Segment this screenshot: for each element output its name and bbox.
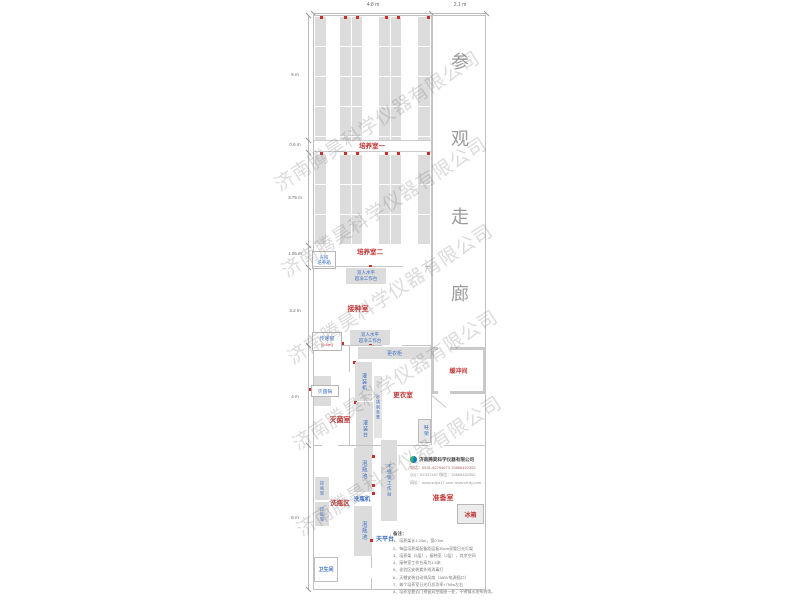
rack-seam (351, 17, 352, 140)
soak-pool-2: 泡瓶池 (354, 506, 372, 556)
outlet-dot (385, 16, 388, 19)
company-web: 网址：www.sdpd17.com www.crhkj.com (410, 480, 490, 486)
soak-pool-1-label: 泡瓶池 (360, 460, 366, 480)
bottle-rack-2-label: 控瓶架 (320, 507, 324, 522)
outlet-dot (397, 16, 400, 19)
wall-middle-south (313, 445, 322, 446)
wall-toilet-stub (371, 556, 372, 568)
toilet-room: 卫生间 (314, 557, 338, 582)
pass-window-area: (0.6㎡) (321, 342, 333, 348)
light-incubator-label: 光照 培养箱 (317, 255, 331, 266)
filling-machine-label: 灌装机 (361, 373, 366, 391)
outlet-dot (356, 16, 359, 19)
note-item: 4、接种室工作台高为1.5米 (393, 560, 485, 566)
steel-bench: 不锈钢条凳 (374, 376, 382, 438)
outlet-dot (372, 455, 375, 458)
wardrobe: 更衣柜 (358, 347, 431, 359)
buffer-door-gap (438, 390, 450, 395)
outlet-dot (372, 484, 375, 487)
filling-table-label: 灌装台 (362, 420, 367, 438)
note-item: 2、每层培养架配备距层板30cm双管日光灯架 (393, 546, 485, 552)
room-label-toilet: 卫生间 (318, 566, 333, 573)
note-item: 6、天棚安装自动排风扇（380V电源插口） (393, 575, 485, 581)
autoclave-tag: 灭菌锅 (311, 385, 339, 397)
soak-pool-2-label: 泡瓶池 (360, 521, 366, 541)
dim-left-1: 5 m (284, 72, 306, 77)
outlet-dot (372, 492, 375, 495)
buffer-door-gap (438, 346, 450, 351)
rack-seam (390, 155, 391, 245)
dim-left-6: 4 m (284, 394, 306, 399)
wardrobe-label: 更衣柜 (387, 350, 402, 357)
steel-worktable: 不锈钢工作台 (381, 440, 397, 521)
corridor-char: 走 (451, 203, 469, 229)
fridge-label: 冰箱 (464, 510, 476, 519)
corridor-char: 参 (451, 48, 469, 74)
autoclave-label: 灭菌锅 (318, 388, 332, 395)
shoe-rack-label: 鞋架 (422, 425, 427, 437)
bottle-rack-1-label: 控瓶架 (320, 481, 324, 496)
culture-rack (315, 155, 326, 245)
steel-bench-label: 不锈钢条凳 (376, 395, 380, 420)
wall-middle-south (444, 445, 486, 446)
filling-machine: 灌装机 (355, 362, 372, 401)
shoe-rack: 鞋架 (418, 419, 431, 443)
company-phone: 电话：0531-82794673 15866452352 (410, 465, 490, 471)
wall-culture2-inoculation (425, 266, 431, 267)
dim-left-3: 3.75 m (284, 195, 306, 200)
pass-window-label: 传递窗 (319, 335, 334, 342)
room-label-culture2: 培养室二 (338, 249, 402, 256)
company-block: 济南腾昊科学仪器有限公司 电话：0531-82794673 1586645235… (410, 456, 490, 486)
clean-bench-1-label: 双人水平 超净工作台 (355, 270, 378, 281)
outlet-dot (427, 16, 430, 19)
dim-left-4: 1.05 m (284, 251, 306, 256)
note-item: 1、培养架长1.25m，宽0.5m (393, 538, 485, 544)
room-label-buffer: 缓冲间 (449, 366, 467, 375)
clean-bench-1: 双人水平 超净工作台 (346, 268, 386, 284)
note-item: 5、化验区安装紫外线消毒灯 (393, 567, 485, 573)
room-label-culture1: 培养室一 (340, 143, 404, 150)
outlet-dot (369, 265, 372, 268)
room-label-inoculation: 接种室 (338, 306, 378, 314)
visitor-corridor-label: 参 观 走 廊 (448, 48, 472, 306)
floor-plan-canvas: 4.8 m 2.1 m 5 m 0.6 m 3.75 m 1.05 m 3.2 … (0, 0, 800, 600)
note-item: 8、培养室靠近门预留双控插座一处，不锈钢水池布线等。 (393, 589, 485, 595)
bottle-rack-1: 控瓶架 (315, 477, 329, 500)
wall-culture2-inoculation (313, 266, 403, 267)
top-dimension-line (313, 13, 487, 14)
dim-left-5: 3.2 m (284, 308, 306, 313)
rack-seam (390, 17, 391, 140)
wall-changing-east (431, 394, 432, 445)
outlet-dot (344, 16, 347, 19)
notes-header: 备注： (393, 531, 485, 537)
dim-top-2: 2.1 m (441, 2, 479, 8)
steel-worktable-label: 不锈钢工作台 (387, 464, 392, 497)
corridor-char: 观 (451, 125, 469, 151)
company-qq: QQ：87437467 微信：15866452352 (410, 472, 490, 478)
corridor-char: 廊 (451, 280, 469, 306)
dim-top-1: 4.8 m (354, 2, 392, 8)
fridge: 冰箱 (457, 504, 484, 524)
rack-seam (351, 155, 352, 245)
room-label-sterilization: 灭菌室 (324, 417, 356, 425)
clean-bench-2-label: 双人水平 超净工作台 (359, 332, 382, 343)
wall-inoculation-south (402, 345, 431, 346)
pass-window: 传递窗 (0.6㎡) (312, 332, 342, 351)
dim-left-7: 6 m (284, 515, 306, 520)
company-name: 济南腾昊科学仪器有限公司 (419, 457, 474, 463)
culture-rack (418, 17, 430, 140)
culture-rack (315, 17, 326, 140)
soak-pool-1: 泡瓶池 (354, 448, 372, 492)
wall-sterilization-east (349, 346, 350, 372)
corridor-wall (431, 15, 433, 348)
room-label-changing: 更衣室 (385, 392, 421, 399)
buffer-room: 缓冲间 (431, 347, 486, 394)
culture-rack (418, 155, 430, 245)
bottle-washer-label: 洗瓶机 (348, 497, 376, 503)
company-logo-icon (410, 456, 417, 463)
notes-block: 备注： 1、培养架长1.25m，宽0.5m 2、每层培养架配备距层板30cm双管… (393, 531, 485, 595)
note-item: 7、每个培养室日光灯总功率×750w左右 (393, 582, 485, 588)
left-dimension-line (308, 15, 309, 590)
dim-left-2: 0.6 m (284, 142, 306, 147)
note-item: 3、培养架（5层），接种室（2层），其余空间 (393, 553, 485, 559)
room-label-preparation: 准备室 (425, 495, 461, 503)
outlet-dot (320, 16, 323, 19)
wall-toilet-stub (371, 578, 372, 590)
